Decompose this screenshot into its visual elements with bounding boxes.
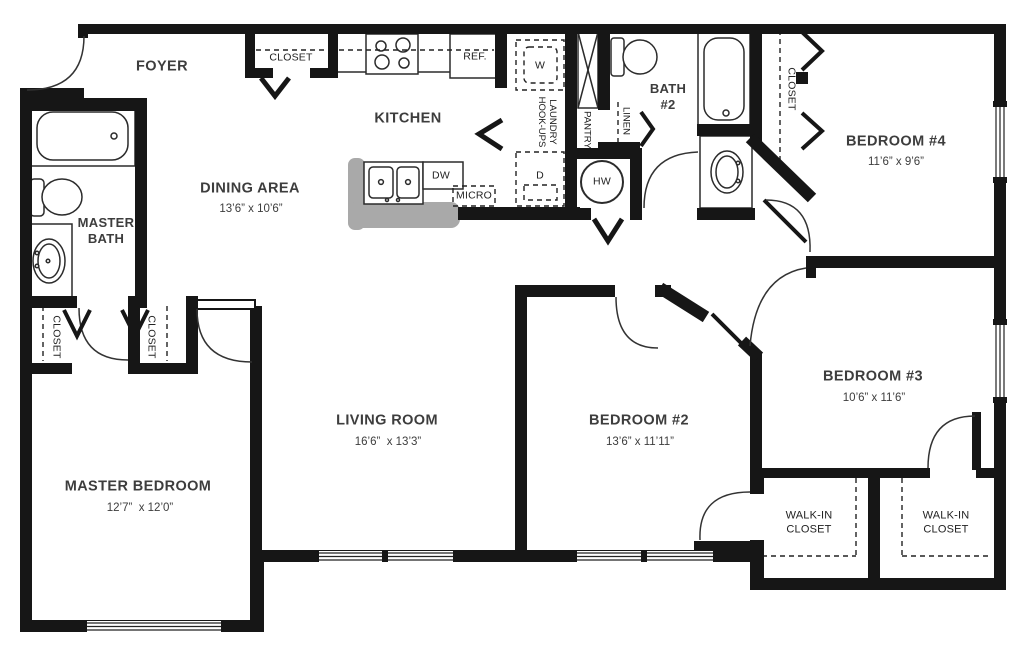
microwave-label: MICRO xyxy=(456,190,492,203)
master-bedroom-window xyxy=(79,620,229,632)
bath2-sink xyxy=(700,136,752,208)
master-closet1-label: CLOSET xyxy=(50,315,63,358)
master-closet2-label: CLOSET xyxy=(145,315,158,358)
walkin-closet1-label: WALK-INCLOSET xyxy=(786,483,833,562)
bedroom4-closet-label: CLOSET xyxy=(785,67,798,110)
kitchen-label: KITCHEN xyxy=(374,110,441,127)
master-bath-label: MASTERBATH xyxy=(78,184,135,278)
dishwasher-label: DW xyxy=(432,170,450,183)
laundry-hookups-label: LAUNDRYHOOK-UPS xyxy=(513,97,581,148)
master-bedroom-label: MASTER BEDROOM xyxy=(65,478,212,495)
living-room-dims: 16’6” x 13’3” xyxy=(355,436,421,450)
bath2-label: BATH#2 xyxy=(650,50,686,144)
washer-label: W xyxy=(535,60,545,73)
bedroom4-window xyxy=(993,101,1007,183)
bedroom3-label: BEDROOM #3 xyxy=(823,368,923,385)
fridge-label: REF. xyxy=(463,51,487,64)
dining-dims: 13’6” x 10’6” xyxy=(219,203,282,217)
master-bedroom-dims: 12’7” x 12’0” xyxy=(107,502,173,516)
living-room-window xyxy=(311,550,461,562)
bedroom2-dims: 13’6” x 11’11” xyxy=(606,436,674,450)
bedroom2-window xyxy=(569,550,721,562)
kitchen-sink xyxy=(364,162,423,204)
master-bath-tub xyxy=(30,106,135,166)
bedroom4-dims: 11’6” x 9’6” xyxy=(868,156,924,170)
dining-label: DINING AREA xyxy=(200,180,300,197)
master-bath-toilet xyxy=(30,179,82,216)
bedroom2-label: BEDROOM #2 xyxy=(589,412,689,429)
walkin-closet2-label: WALK-INCLOSET xyxy=(923,483,970,562)
stove-icon xyxy=(366,34,418,74)
foyer-closet-label: CLOSET xyxy=(269,52,312,65)
linen-label: LINEN xyxy=(620,107,631,135)
floor-plan: FOYER CLOSET KITCHEN REF. W LAUNDRYHOOK-… xyxy=(0,0,1024,652)
bedroom4-label: BEDROOM #4 xyxy=(846,133,946,150)
master-bath-sink xyxy=(26,224,72,297)
dryer-label: D xyxy=(536,170,544,183)
bath2-tub xyxy=(698,32,750,126)
door-arcs xyxy=(27,36,975,540)
foyer-label: FOYER xyxy=(136,58,188,75)
bedroom3-window xyxy=(993,319,1007,403)
water-heater-label: HW xyxy=(593,176,611,189)
living-room-label: LIVING ROOM xyxy=(336,412,438,429)
pantry-label: PANTRY xyxy=(581,111,592,149)
bedroom3-dims: 10’6” x 11’6” xyxy=(843,392,905,406)
